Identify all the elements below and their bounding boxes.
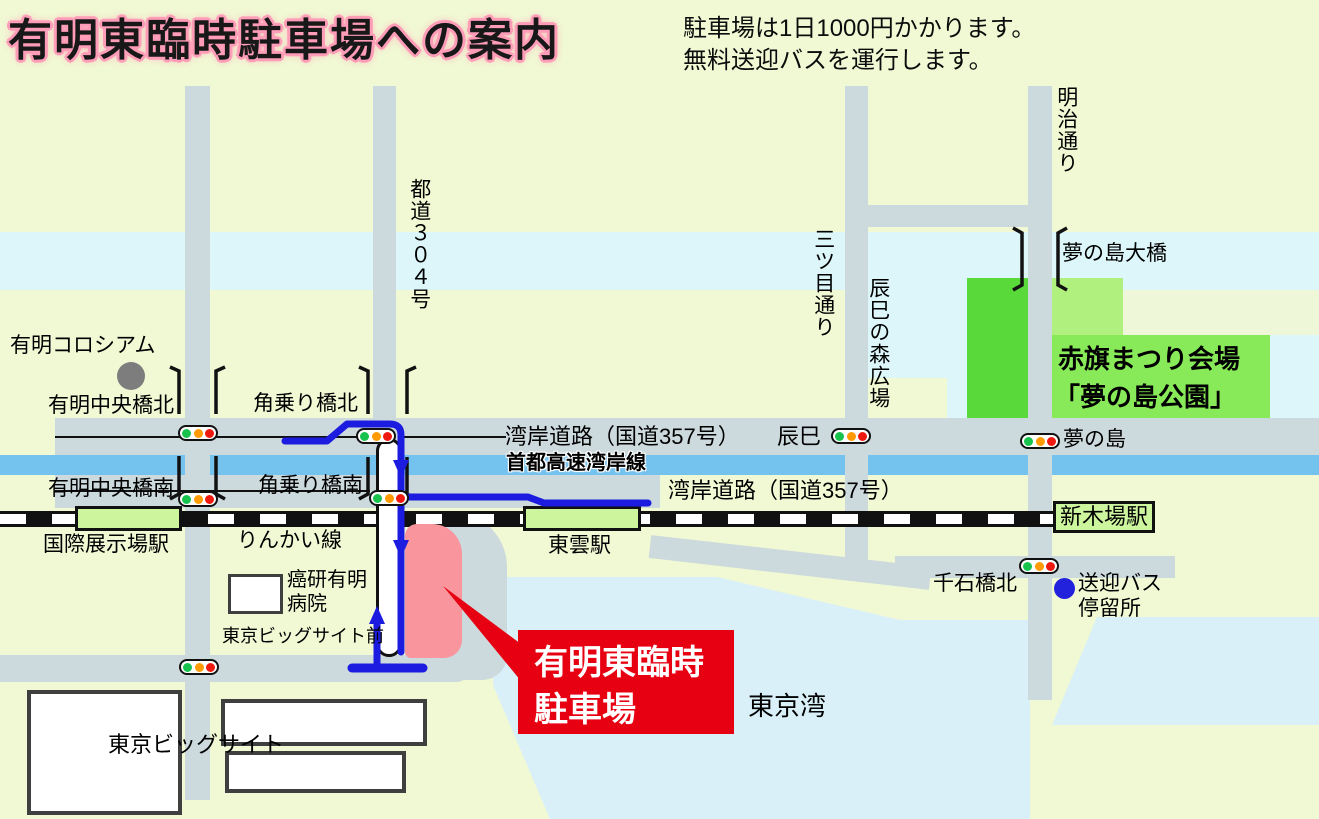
shinkiba-station-label: 新木場駅 xyxy=(1060,504,1148,530)
traffic-light-icon xyxy=(356,428,396,444)
canal-east-water xyxy=(1052,617,1319,725)
yumenoshima-label: 夢の島 xyxy=(1063,428,1126,453)
shuttle-bus-stop-label: 送迎バス 停留所 xyxy=(1078,572,1162,622)
page-title: 有明東臨時駐車場への案内 xyxy=(8,4,560,68)
bigsight-mae-label: 東京ビッグサイト前 xyxy=(222,626,384,647)
ariake-chuo-minami-label: 有明中央橋南 xyxy=(48,477,174,502)
senseki-bashi-kita-label: 千石橋北 xyxy=(933,572,1017,597)
ariake-chuo-kita-label: 有明中央橋北 xyxy=(48,394,174,419)
park-block-west xyxy=(967,278,1030,430)
tatsumi-no-mori-label: 辰巳の森広場 xyxy=(865,277,890,409)
road-meiji-dori xyxy=(1028,86,1052,700)
traffic-light-icon xyxy=(1019,558,1059,574)
akahata-festival-label: 赤旗まつり会場 xyxy=(1058,344,1240,375)
traffic-light-icon xyxy=(1020,433,1060,449)
bus-stop-dot xyxy=(1054,578,1075,599)
ariake-colosseum-label: 有明コロシアム xyxy=(10,334,156,359)
wangan-lower-label: 湾岸道路（国道357号） xyxy=(668,478,903,504)
shuto-expressway-label: 首都高速湾岸線 xyxy=(506,452,646,476)
traffic-light-icon xyxy=(179,659,219,675)
yumenoshima-ohashi-label: 夢の島大橋 xyxy=(1062,242,1167,267)
road-connector-north xyxy=(862,205,1038,227)
tokyo-bigsight-label: 東京ビッグサイト xyxy=(108,732,284,758)
parking-callout-box: 有明東臨時 駐車場 xyxy=(518,630,734,734)
mitsume-dori-label: 三ツ目通り xyxy=(810,228,835,338)
traffic-light-icon xyxy=(178,491,218,507)
route-map: 新木場駅 xyxy=(0,0,1319,819)
parking-lot-area xyxy=(405,524,462,658)
road-kakunori-bridge xyxy=(376,438,402,657)
yumenoshima-park-label: 「夢の島公園」 xyxy=(1054,382,1236,413)
road-todo304-north xyxy=(373,86,396,420)
landmark-dot xyxy=(117,362,145,390)
green-area-right xyxy=(1123,290,1319,335)
kakunori-kita-label: 角乗り橋北 xyxy=(253,392,358,417)
park-block-north xyxy=(1052,278,1123,335)
fee-note: 駐車場は1日1000円かかります。 xyxy=(683,8,1035,43)
map-page: { "title": "有明東臨時駐車場への案内", "notes": [ "駐… xyxy=(0,0,1319,819)
rinkai-line-label: りんかい線 xyxy=(237,529,342,554)
traffic-light-icon xyxy=(178,425,218,441)
meiji-dori-label: 明治通り xyxy=(1053,86,1078,174)
hospital-label: 癌研有明 病院 xyxy=(287,569,367,616)
tatsumi-label: 辰巳 xyxy=(777,424,821,450)
station-shinkiba: 新木場駅 xyxy=(1053,501,1155,533)
shinonome-station-label: 東雲駅 xyxy=(548,534,611,559)
traffic-light-icon xyxy=(369,490,409,506)
kakunori-minami-label: 角乗り橋南 xyxy=(258,474,363,499)
kokusai-tenjijo-label: 国際展示場駅 xyxy=(43,533,169,558)
shuttle-note: 無料送迎バスを運行します。 xyxy=(683,40,993,75)
road-bigsight-mae xyxy=(0,655,470,682)
station-shinonome xyxy=(523,506,641,531)
traffic-light-icon xyxy=(831,428,871,444)
station-kokusai-tenjijo xyxy=(75,506,182,531)
todo304-label: 都道３０４号 xyxy=(406,178,431,310)
tokyo-bay-label: 東京湾 xyxy=(748,691,826,722)
wangan-upper-label: 湾岸道路（国道357号） xyxy=(505,424,740,450)
hospital-building xyxy=(228,574,283,614)
